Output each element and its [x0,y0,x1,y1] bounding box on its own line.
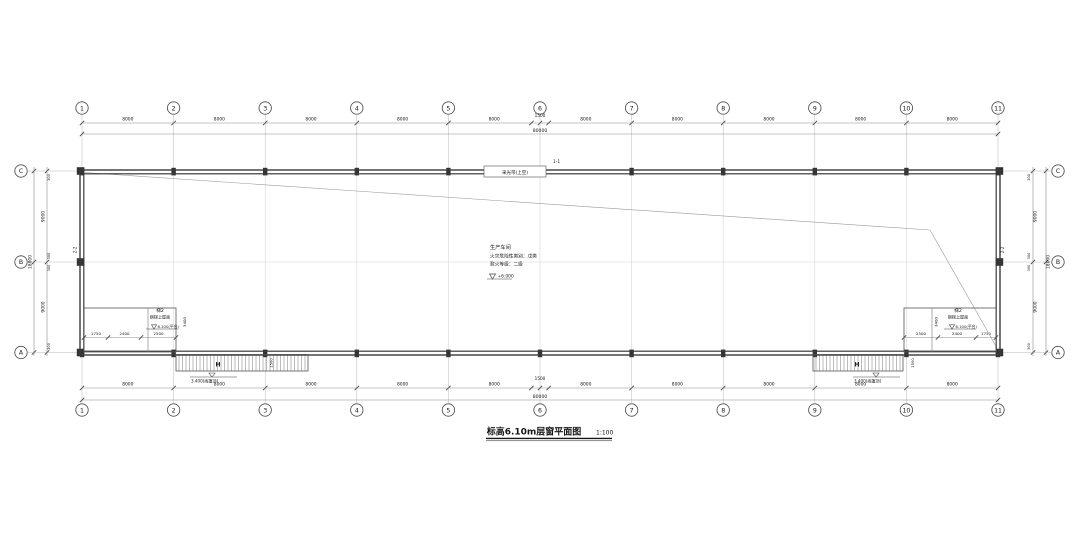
axis-label-top: 10 [902,105,910,112]
canopy-right-label: 3.400(雨篷顶) [854,378,882,384]
drawing-title: 标高6.10m层窗平面图 [486,426,582,438]
bay-dim: 8000 [672,117,683,123]
canopy-left-depth-dim: 1500 [269,358,274,368]
axis-label-top: 11 [994,105,1002,112]
edge-offset-dim: 300 [1027,253,1031,260]
axis-label-top: 3 [263,105,267,112]
bay-dim: 8000 [855,117,866,123]
canopy-right-label-triangle [873,373,879,377]
stair-left-depth-dim: 3400 [182,317,187,327]
axis-label-bottom: 5 [446,407,450,414]
axis-label-left: C [19,168,23,175]
edge-offset-dim: 300 [1027,343,1031,350]
axis-label-top: 6 [538,105,542,112]
axis-label-bottom: 11 [994,407,1002,414]
axis-label-top: 4 [355,105,359,112]
bay-dim: 8000 [763,117,774,123]
stair-left-elevation-triangle [152,325,157,329]
floor-plan-canvas: 1122334455667788991010111180008000800080… [0,0,1080,552]
bay-dim: 8000 [122,117,133,123]
axis-label-bottom: 3 [263,407,267,414]
room-width-dim: 1750 [91,331,101,336]
axis-label-bottom: 6 [538,407,542,414]
generated-linework: 1122334455667788991010111180008000800080… [15,102,1064,416]
stair-left-note: 钢梯上屋面 [150,314,170,320]
drawing-scale: 1:100 [596,430,613,437]
bay-dim: 8000 [489,382,500,388]
axis-label-bottom: 1 [80,407,84,414]
room-width-dim: 2500 [154,331,164,336]
bay-height-dim: 9000 [41,211,47,222]
section-mark-1-1: 1-1 [553,159,560,165]
axis6-dim: 1500 [535,376,546,381]
axis6-dim: 1500 [535,113,546,118]
axis-label-top: 5 [446,105,450,112]
axis-label-bottom: 8 [721,407,725,414]
stair-right-note: 钢梯上屋面 [948,314,968,320]
fire-hazard-note: 火灾危险性类别：戊类 [490,253,537,260]
axis-label-right: C [1056,168,1060,175]
axis-label-right: B [1056,259,1060,266]
floor-plan-svg: 1122334455667788991010111180008000800080… [0,0,1080,552]
bay-height-dim: 9000 [1033,211,1039,222]
bay-height-dim: 9000 [1033,301,1039,312]
stair-right-name: 梯2 [954,307,962,314]
edge-offset-dim: 300 [1027,265,1031,272]
axis-label-bottom: 9 [813,407,817,414]
axis-label-top: 8 [721,105,725,112]
canopy-right-depth-dim: 1500 [910,358,915,368]
room-use-note: 生产车间 [490,243,511,251]
ladder-mark-left: H [215,362,220,369]
bay-height-dim: 9000 [41,301,47,312]
ladder-mark-right: H [854,362,859,369]
stair-left-name: 梯2 [156,307,164,314]
bay-dim: 8000 [763,382,774,388]
edge-offset-dim: 300 [47,174,51,181]
room-width-dim: 2500 [916,331,926,336]
axis-label-bottom: 4 [355,407,359,414]
roof-slope-line-2 [930,230,997,348]
edge-offset-dim: 300 [1027,174,1031,181]
axis-label-top: 9 [813,105,817,112]
edge-offset-dim: 300 [47,343,51,350]
floor-elevation-triangle [490,274,496,279]
bay-dim: 8000 [672,382,683,388]
bay-dim: 8000 [947,382,958,388]
bay-dim: 8000 [122,382,133,388]
room-width-dim: 2400 [952,331,962,336]
axis-label-top: 1 [80,105,84,112]
axis-label-left: B [19,259,23,266]
bay-dim: 8000 [305,117,316,123]
bay-dim: 8000 [397,117,408,123]
total-height-dim: 18000 [28,255,34,269]
bay-dim: 8000 [214,117,225,123]
bay-dim: 8000 [305,382,316,388]
bay-dim: 8000 [580,117,591,123]
section-mark-2-2-right: 2-2 [1000,246,1005,253]
stair-right-elevation: 6.100(平台) [956,324,978,329]
bay-dim: 8000 [397,382,408,388]
bay-dim: 8000 [489,117,500,123]
room-width-dim: 2400 [120,331,130,336]
axis-label-top: 2 [172,105,176,112]
roof-strip-label: 采光带(上空) [502,169,528,176]
axis-label-bottom: 10 [902,407,910,414]
stair-left-elevation: 6.100(平台) [158,324,180,329]
axis-label-bottom: 2 [172,407,176,414]
axis-label-top: 7 [630,105,634,112]
canopy-left-label-triangle [209,373,215,377]
total-height-dim: 18000 [1046,255,1052,269]
floor-elevation: +6.000 [498,274,514,280]
bay-dim: 8000 [947,117,958,123]
bay-dim: 8000 [580,382,591,388]
axis-label-bottom: 7 [630,407,634,414]
edge-offset-dim: 300 [47,265,51,272]
roof-slope-line-1 [84,173,930,231]
total-width-dim: 80000 [533,128,548,134]
edge-offset-dim: 300 [47,253,51,260]
stair-right-depth-dim: 3400 [934,317,939,327]
section-mark-2-2-left: 2-2 [73,246,78,253]
stair-right-elevation-triangle [950,325,955,329]
fire-rating-note: 耐火等级：二级 [490,261,523,268]
total-width-dim: 80000 [533,394,548,400]
canopy-left-label: 3.400(雨篷顶) [191,378,219,384]
